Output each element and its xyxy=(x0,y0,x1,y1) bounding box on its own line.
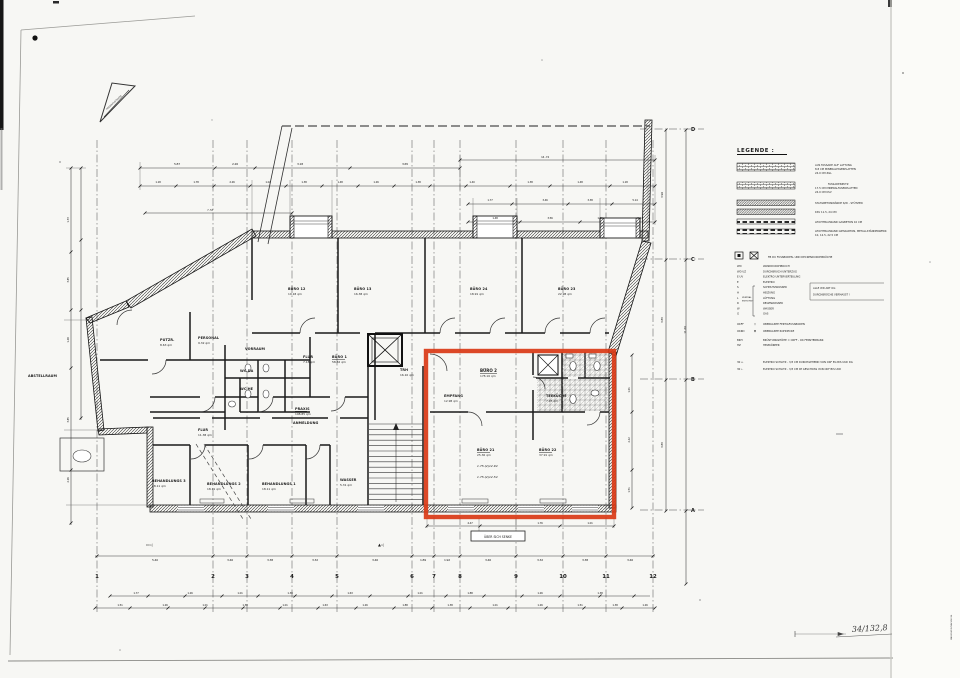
swatch-facade-lattung xyxy=(737,163,795,171)
handwritten-number: 34/132,8 xyxy=(852,623,888,634)
pencil-notes-0: 1.75-(2)12.94 xyxy=(477,464,498,468)
col-dimensions-7: 3.46 xyxy=(485,558,491,562)
red-right-dimensions-1: 2.42 xyxy=(627,437,631,443)
grid-row-letters-2: B xyxy=(691,377,695,383)
level-abbrs-1: OKRD xyxy=(737,329,745,333)
bottom-dimensions-2-0: 1.51 xyxy=(117,603,123,607)
swatch-fassadenputz xyxy=(737,182,795,189)
room-labels-8: BÜRO 1 xyxy=(332,354,348,359)
room-labels-15: BEHANDLUNGS 1 xyxy=(262,482,296,486)
level-texts-0: OBERKANTE FERTIGFUSSBODEN xyxy=(763,322,805,326)
grid-row-letters-3: A xyxy=(691,508,695,514)
legend-material-line1-1: FASSADENPUTZ xyxy=(828,182,849,186)
grid-column-numbers-10: 11 xyxy=(602,574,610,580)
abbrev-keys-2: E UV xyxy=(737,275,743,279)
bottom-dimensions-2-7: 1.88 xyxy=(402,603,408,607)
top-dimensions-2-8: 1.40 xyxy=(469,180,475,184)
legend-material-line3-0: 24.0 CM ZGL xyxy=(815,171,832,175)
grid-column-numbers-2: 3 xyxy=(245,574,249,580)
grid-row-letters-1: C xyxy=(691,257,695,263)
grid-column-numbers-0: 1 xyxy=(95,574,99,580)
top-dimensions-2-9: 1.38 xyxy=(527,180,533,184)
top-dimensions-2-10: 1.48 xyxy=(577,180,583,184)
left-dimensions-2: 1.48 xyxy=(66,337,70,343)
room-labels-17: TRH xyxy=(400,368,408,372)
room-labels-14: BEHANDLUNGS 2 xyxy=(207,482,241,486)
red-right-dimensions-2: 1.51 xyxy=(627,487,631,493)
legend-material-line2-1: 17.5 CM MINERALFASERPLATTEN xyxy=(815,186,857,190)
bottom-dimensions-2-11: 1.51 xyxy=(577,603,583,607)
bottom-dimensions-2-2: 1.01 xyxy=(202,603,208,607)
top-dimensions-4-2: 1.41 xyxy=(597,216,603,220)
bottom-dimensions-1-6: 1.88 xyxy=(467,591,473,595)
top-dimensions-4-0: 1.48 xyxy=(492,216,498,220)
bottom-dimensions-2-12: 1.38 xyxy=(612,603,618,607)
grid-column-numbers-1: 2 xyxy=(211,574,215,580)
bottom-dimensions-1-0: 1.77 xyxy=(133,591,139,595)
bottom-dimensions-1-1: 1.26 xyxy=(187,591,193,595)
room-areas-7: 7.18 qm xyxy=(303,360,315,364)
legend-material-line2-0: 8.8 CM MINERALFASERPLATTEN xyxy=(815,167,856,171)
abbrev-meanings-1: DURCHBRUCH UNTERZUG xyxy=(763,269,797,273)
level-symbols-1: ▼ xyxy=(754,330,756,333)
swatch-gipskarton xyxy=(737,229,795,234)
abbrev-keys-0: WD xyxy=(737,264,742,268)
room-labels-5: PERSONAL xyxy=(198,336,220,340)
top-dimensions-3-2: 3.38 xyxy=(587,198,593,202)
grid-column-numbers-7: 8 xyxy=(458,574,462,580)
bottom-dimensions-2-8: 1.38 xyxy=(447,603,453,607)
bottom-dimensions-2-3: 1.38 xyxy=(242,603,248,607)
room-labels-19: WC HE xyxy=(240,387,254,391)
col-dimensions-8: 3.32 xyxy=(537,558,543,562)
misc-abbrs-1: HZ xyxy=(737,343,741,347)
empfang-area: 12.98 qm xyxy=(444,399,458,403)
abbrev-meanings-7: REGENWASSER xyxy=(763,301,783,305)
room-areas-1: 16.38 qm xyxy=(354,292,368,296)
bottom-dimensions-2-9: 1.01 xyxy=(492,603,498,607)
top-dimensions-2-2: 2.26 xyxy=(229,180,235,184)
top-dimensions-1-0: 5.87 xyxy=(174,162,180,166)
elektro-keys-1: 30 ← xyxy=(737,367,744,371)
bottom-dimensions-2-10: 1.26 xyxy=(537,603,543,607)
level-texts-1: OBERKANTE ROHDECKE xyxy=(763,329,795,333)
room-areas-9: 108.85 qm xyxy=(295,412,311,416)
top-dimensions-3-0: 1.77 xyxy=(487,198,493,202)
misc-abbrs-0: BRH xyxy=(737,338,743,342)
room-labels-7: FLUR xyxy=(303,355,313,359)
legend-material-line1-3: KSV 11.5, 24 CM xyxy=(815,210,837,214)
abbrev-meanings-4: SCHMUTZWASSER xyxy=(763,285,787,289)
below-red-dimensions-1: 1.76 xyxy=(537,521,543,525)
room-labels-18: WC DA xyxy=(240,369,254,373)
legend-material-line3-1: 24.0 CM KSV xyxy=(815,190,832,194)
legend-material-line2-5: 10, 12.5, 22.5 CM xyxy=(815,233,838,237)
teekueche-area: 7.95 qm xyxy=(546,399,558,403)
room-labels-13: BEHANDLUNGS 3 xyxy=(152,479,186,483)
elektro-keys-0: 30 ↔ xyxy=(737,360,744,364)
elektro-texts-1: ELEKTRO SCHLITZ - 3/3 CM IM GESCHOSS VON… xyxy=(763,367,841,371)
bottom-dimensions-2-13: 1.26 xyxy=(642,603,648,607)
grid-column-numbers-11: 12 xyxy=(649,574,657,580)
abbrev-keys-7: R xyxy=(737,301,739,305)
room-labels-10: ANMELDUNG xyxy=(293,421,319,425)
plan-markers-1: ▲◁ xyxy=(378,542,384,547)
col-dimensions-6: 1.92 xyxy=(444,558,450,562)
col-dimensions-0: 5.40 xyxy=(152,558,158,562)
top-dimensions-4-1: 3.56 xyxy=(547,216,553,220)
empfang-label: EMPFANG xyxy=(444,394,463,398)
buero21-label: BÜRO 21 xyxy=(477,447,495,452)
room-labels-9: PRAXIS xyxy=(295,407,310,411)
teekueche-label: TEEKÜCHE xyxy=(546,393,567,398)
left-dimensions-4: 2.26 xyxy=(66,477,70,483)
margin-vertical-note: MAUERWERKSACHSE 84 xyxy=(950,614,953,640)
abbrev-meanings-9: GAS xyxy=(763,312,769,316)
swatch-gasbeton xyxy=(737,219,795,224)
room-labels-2: BÜRO 24 xyxy=(470,286,488,291)
top-dimensions-1-2: 3.18 xyxy=(297,162,303,166)
left-small-dimension: 7.53 xyxy=(207,208,213,212)
room-areas-5: 9.32 qm xyxy=(198,341,210,345)
pencil-notes-1: 1.75-(2)12.54 xyxy=(477,475,498,479)
bottom-dimensions-1-2: 1.01 xyxy=(237,591,243,595)
room-areas-17: 16.10 qm xyxy=(400,373,414,377)
bottom-dimensions-1-7: 1.26 xyxy=(537,591,543,595)
room-labels-0: BÜRO 12 xyxy=(288,286,306,291)
buero21-area: 25.36 qm xyxy=(477,453,491,457)
abbrev-keys-5: H xyxy=(737,291,739,295)
grid-column-numbers-5: 6 xyxy=(410,574,414,580)
buero22-label: BÜRO 22 xyxy=(539,447,557,452)
side-note-0: ALLE WD ART OG xyxy=(813,286,835,290)
room-areas-15: 18.11 qm xyxy=(262,487,276,491)
grid-column-numbers-9: 10 xyxy=(559,574,567,580)
plan-markers-0: ▭◁ xyxy=(146,542,153,547)
room-areas-12: 11.38 qm xyxy=(198,433,212,437)
bottom-dimensions-2-6: 1.26 xyxy=(362,603,368,607)
paper-right-margin xyxy=(892,0,960,678)
abbrev-meanings-0: WANDDURCHBRUCH xyxy=(763,264,790,268)
top-dimensions-1-1: 2.26 xyxy=(232,162,238,166)
level-abbrs-0: OKFF xyxy=(737,322,744,326)
legend-material-line1-4: LEICHTBAUWAND GASBETON 10 CM xyxy=(815,220,862,224)
room-labels-3: BÜRO 23 xyxy=(558,286,576,291)
top-dimensions-3-1: 3.46 xyxy=(542,198,548,202)
col-dimensions-4: 3.46 xyxy=(372,558,378,562)
bottom-dimensions-2-5: 1.63 xyxy=(322,603,328,607)
bottom-dimensions-2-4: 1.01 xyxy=(282,603,288,607)
room-labels-12: FLUR xyxy=(198,428,208,432)
room-labels-11: ABSTELLRAUM xyxy=(28,374,57,378)
below-red-dimensions-0: 4.47 xyxy=(467,521,473,525)
floor-plan-drawing: FRIEDRICHSTRASSE 123456789101112 DCBA 5.… xyxy=(0,0,960,678)
top-dimensions-2-11: 1.18 xyxy=(622,180,628,184)
below-red-dimensions-2: 1.01 xyxy=(587,521,593,525)
row-dimensions-2: 3.85 xyxy=(660,442,664,448)
room-areas-3: 22.98 qm xyxy=(558,292,572,296)
swatch-stahlbeton xyxy=(737,200,795,206)
col-dimensions-10: 3.46 xyxy=(627,558,633,562)
left-dimensions-0: 1.33 xyxy=(66,217,70,223)
top-dimensions-4-3: 5.14 xyxy=(637,216,643,220)
bottom-dimensions-1-5: 1.01 xyxy=(417,591,423,595)
under-box: ÜBER SICH SENKE xyxy=(471,531,525,541)
room-labels-1: BÜRO 13 xyxy=(354,286,372,291)
grid-column-numbers-6: 7 xyxy=(432,574,436,580)
abbrev-keys-9: G xyxy=(737,312,739,316)
room-areas-4: 8.63 qm xyxy=(160,343,172,347)
col-dimensions-5: 1.89 xyxy=(420,558,426,562)
top-dimensions-2-5: 1.48 xyxy=(337,180,343,184)
bottom-dimensions-1-8: 1.38 xyxy=(597,591,603,595)
room-labels-16: WASSER xyxy=(340,478,357,482)
elektro-texts-0: ELEKTRO SCHLITZ - 3/3 CM DURCHGEHEND VON… xyxy=(763,360,853,364)
level-symbols-0: ▽ xyxy=(754,323,756,326)
abbrev-keys-1: WD UZ xyxy=(737,269,746,273)
room-areas-16: 5.31 qm xyxy=(340,483,352,487)
col-dimensions-2: 3.38 xyxy=(267,558,273,562)
top-long-dimension: 14.74 xyxy=(541,155,549,159)
room-areas-0: 19.18 qm xyxy=(288,292,302,296)
abbrev-meanings-2: ELEKTRO UNTERVERTEILUNG xyxy=(763,275,800,279)
grid-column-numbers-8: 9 xyxy=(514,574,518,580)
brace-note-1: ENTSORGT xyxy=(742,301,754,303)
row-dimensions-3: 11.66 xyxy=(683,326,687,334)
col-dimensions-1: 3.46 xyxy=(227,558,233,562)
buero2-title: BÜRO 2 xyxy=(480,368,497,373)
brace-note-0: ZENTRAL xyxy=(742,296,752,299)
room-areas-2: 18.91 qm xyxy=(470,292,484,296)
top-dimensions-1-3: 3.65 xyxy=(402,162,408,166)
abbrev-meanings-8: WASSER xyxy=(763,306,774,310)
col-dimensions-9: 3.38 xyxy=(582,558,588,562)
bottom-dimensions-1-4: 1.63 xyxy=(347,591,353,595)
abbrev-keys-8: W xyxy=(737,306,740,310)
grid-row-letters-0: D xyxy=(691,127,695,133)
grid-column-numbers-4: 5 xyxy=(335,574,339,580)
room-labels-6: VORRAUM xyxy=(245,347,266,351)
col-dimensions-3: 3.32 xyxy=(312,558,318,562)
top-dimensions-3-3: 5.14 xyxy=(632,198,638,202)
bottom-dimensions-2-1: 1.26 xyxy=(162,603,168,607)
bottom-dimensions-1-3: 1.38 xyxy=(287,591,293,595)
row-dimensions-0: 3.96 xyxy=(660,192,664,198)
top-dimensions-2-1: 1.78 xyxy=(193,180,199,184)
red-right-dimensions-0: 1.01 xyxy=(627,387,631,393)
abbrev-meanings-3: ELEKTRO xyxy=(763,280,775,284)
swatch-ksv xyxy=(737,209,795,215)
grid-column-numbers-3: 4 xyxy=(290,574,294,580)
under-box-label: ÜBER SICH SENKE xyxy=(484,534,512,539)
row-dimensions-1: 3.85 xyxy=(660,317,664,323)
abbrev-meanings-5: HEIZUNG xyxy=(763,291,775,295)
room-areas-8: 58.32 qm xyxy=(332,360,346,364)
top-dimensions-2-3: 1.02 xyxy=(265,180,271,184)
top-dimensions-2-7: 1.38 xyxy=(415,180,421,184)
room-labels-4: PUTZR. xyxy=(160,338,175,342)
buero2-area: 178.16 qm xyxy=(480,374,496,378)
left-dimensions-1: 3.85 xyxy=(66,277,70,283)
legend-title: LEGENDE : xyxy=(737,148,774,154)
top-dimensions-2-6: 1.26 xyxy=(373,180,379,184)
legend-material-line1-0: AUS FASSADE AUF LATTUNG xyxy=(815,163,852,167)
top-dimensions-2-0: 1.18 xyxy=(155,180,161,184)
top-dimensions-2-4: 1.38 xyxy=(301,180,307,184)
left-dimensions-3: 3.85 xyxy=(66,417,70,423)
room-areas-13: 18.11 qm xyxy=(152,484,166,488)
room-areas-14: 18.11 qm xyxy=(207,487,221,491)
scanned-floor-plan: FRIEDRICHSTRASSE 123456789101112 DCBA 5.… xyxy=(0,0,960,678)
buero22-area: 37.91 qm xyxy=(539,453,553,457)
